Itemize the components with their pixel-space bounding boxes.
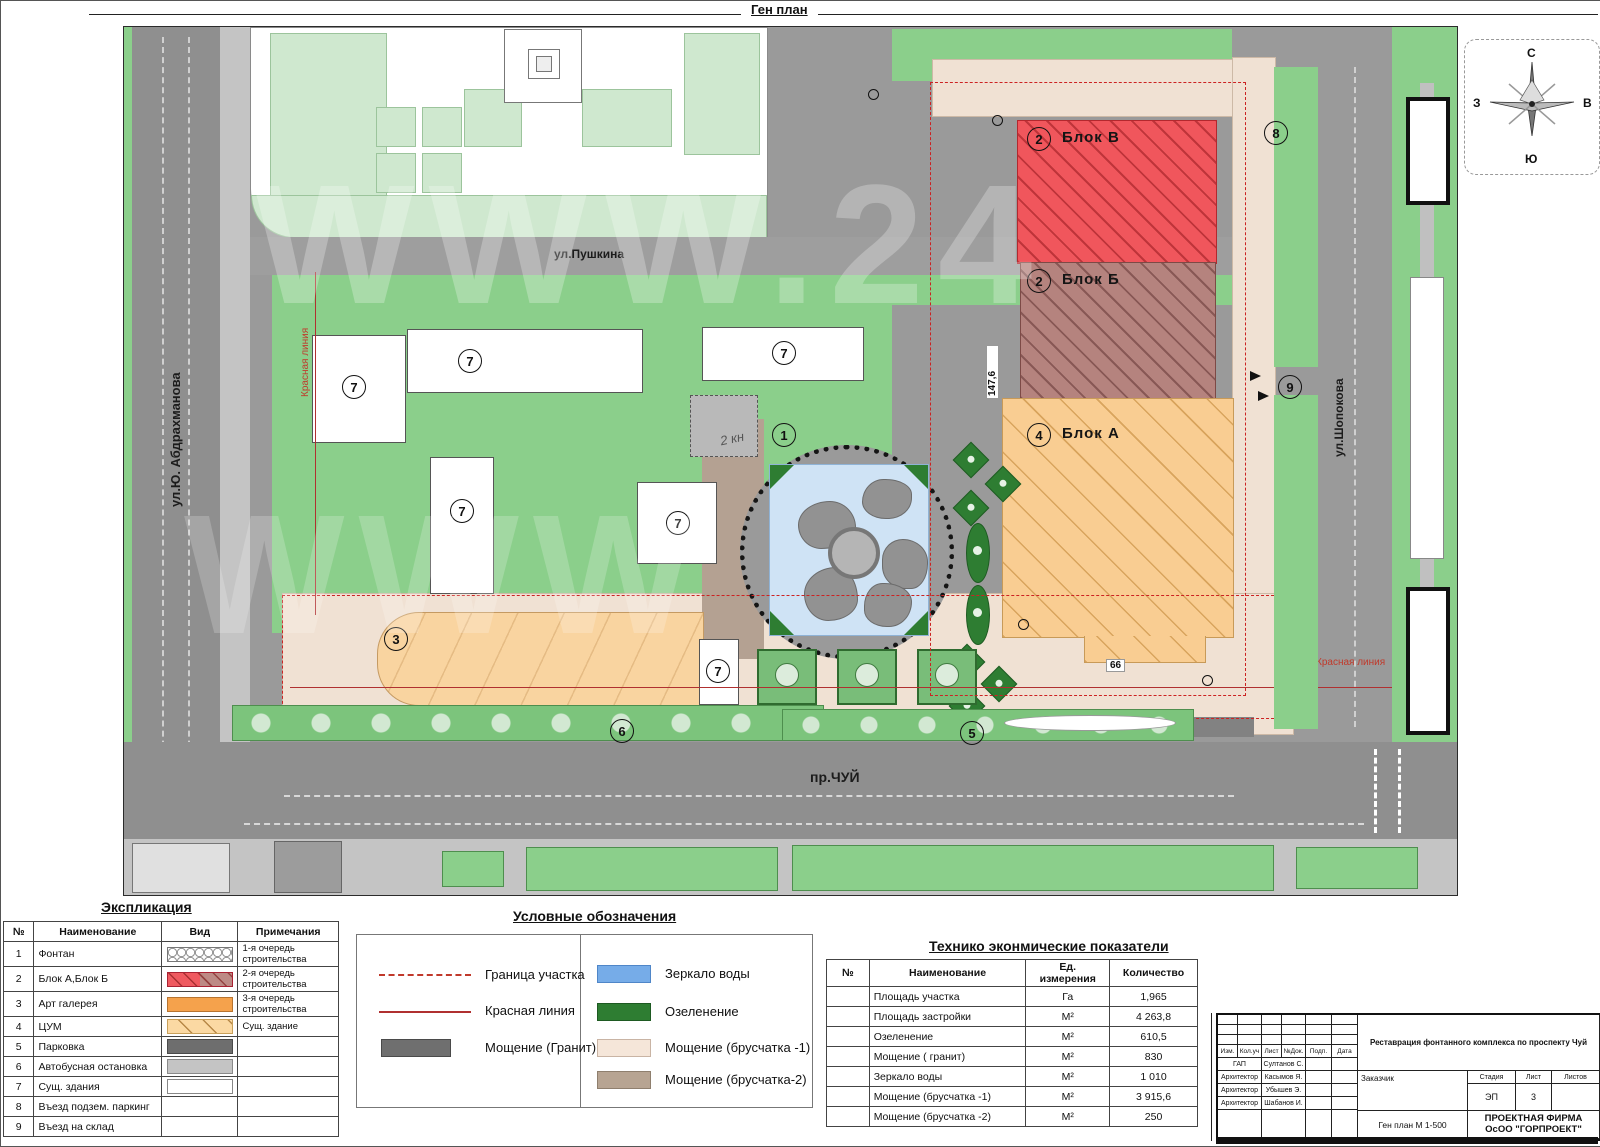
firm-line1: ПРОЕКТНАЯ ФИРМА — [1485, 1114, 1583, 1125]
row-swatch — [162, 992, 238, 1017]
crosswalk — [1374, 749, 1377, 833]
swatch-existing — [167, 1079, 233, 1094]
row-num: 3 — [4, 992, 34, 1017]
green-strip-trees — [232, 705, 824, 741]
row-name: Парковка — [34, 1037, 162, 1057]
marker-blok-b: 2 — [1027, 269, 1051, 293]
lane-dashes — [284, 795, 1234, 797]
east-building — [1406, 97, 1450, 205]
row-note — [238, 1057, 339, 1077]
stamp-role: ГАП — [1218, 1058, 1262, 1071]
table-row: 3 Арт галерея 3-я очередь строительства — [4, 992, 339, 1017]
drawing-sheet: Ген план ул.Ю. Абдрахманова ул.Пушкина — [0, 0, 1600, 1147]
existing-building — [407, 329, 643, 393]
south-building — [274, 841, 342, 893]
row-name: Площадь участка — [869, 987, 1026, 1007]
stamp-col: Лист — [1262, 1045, 1282, 1058]
tei-title: Технико эконмические показатели — [929, 938, 1169, 954]
survey-point — [1202, 675, 1213, 686]
row-qty: 1 010 — [1110, 1067, 1198, 1087]
row-swatch — [162, 1057, 238, 1077]
title-block: Изм. Кол.уч Лист №Док. Подп. Дата ГАП Су… — [1216, 1013, 1600, 1141]
top-frame-line — [89, 14, 1598, 15]
row-swatch — [162, 942, 238, 967]
paving1-swatch — [597, 1039, 651, 1057]
paving2-swatch — [597, 1071, 651, 1089]
stamp-person: Касымов Я. — [1262, 1071, 1306, 1084]
stage-header: Стадия — [1468, 1071, 1516, 1084]
page-title: Ген план — [741, 2, 818, 17]
marker-existing: 7 — [458, 349, 482, 373]
row-swatch — [162, 1037, 238, 1057]
lane-dashes — [1354, 67, 1356, 727]
lawn-patch — [270, 33, 387, 197]
row-num: 5 — [4, 1037, 34, 1057]
marker-warehouse-entry: 9 — [1278, 375, 1302, 399]
legend-label-paving1: Мощение (брусчатка -1) — [665, 1040, 810, 1055]
lawn-patch — [376, 107, 416, 147]
row-num — [827, 1007, 870, 1027]
compass-south: Ю — [1525, 152, 1537, 166]
fountain-island — [862, 479, 912, 519]
swatch-bus-stop — [167, 1059, 233, 1074]
legend-box: Граница участка Красная линия Мощение (Г… — [356, 934, 813, 1108]
marker-parking: 5 — [960, 721, 984, 745]
row-name: Зеркало воды — [869, 1067, 1026, 1087]
col-header: № — [4, 922, 34, 942]
boundary-line-swatch — [379, 974, 471, 976]
explication-title: Экспликация — [101, 899, 192, 915]
stamp-role: Архитектор — [1218, 1071, 1262, 1084]
row-note: 3-я очередь строительства — [238, 992, 339, 1017]
fountain-island — [882, 539, 928, 589]
swatch-fountain — [167, 947, 233, 962]
row-swatch — [162, 1117, 238, 1137]
stamp-col: Кол.уч — [1238, 1045, 1262, 1058]
row-qty: 610,5 — [1110, 1027, 1198, 1047]
site-boundary-south — [282, 595, 1294, 719]
row-num — [827, 1027, 870, 1047]
marker-art-gallery: 3 — [384, 627, 408, 651]
marker-existing: 7 — [342, 375, 366, 399]
sheet-header: Лист — [1516, 1071, 1552, 1084]
survey-point — [1018, 619, 1029, 630]
swatch-blocks — [167, 972, 233, 987]
water-swatch — [597, 965, 651, 983]
row-swatch — [162, 1077, 238, 1097]
red-line-vertical — [315, 272, 316, 615]
table-row: 2 Блок А,Блок Б 2-я очередь строительств… — [4, 967, 339, 992]
frame-line — [1211, 1013, 1212, 1141]
row-name: Въезд подзем. паркинг — [34, 1097, 162, 1117]
legend-label-paving2: Мощение (брусчатка-2) — [665, 1072, 807, 1087]
doc-label: Ген план М 1-500 — [1358, 1111, 1468, 1139]
row-swatch — [162, 967, 238, 992]
row-unit: М² — [1026, 1007, 1110, 1027]
legend-label-red-line: Красная линия — [485, 1003, 575, 1018]
col-header: Наименование — [869, 960, 1026, 987]
legend-divider — [580, 935, 581, 1107]
row-num: 8 — [4, 1097, 34, 1117]
row-num: 1 — [4, 942, 34, 967]
survey-point — [992, 115, 1003, 126]
stamp-role: Архитектор — [1218, 1084, 1262, 1097]
col-header: Ед. измерения — [1026, 960, 1110, 987]
stamp-col: Дата — [1332, 1045, 1358, 1058]
planting-corner — [770, 465, 794, 489]
row-unit: М² — [1026, 1067, 1110, 1087]
row-num: 6 — [4, 1057, 34, 1077]
row-qty: 250 — [1110, 1107, 1198, 1127]
red-line-chui — [290, 687, 1414, 688]
row-num — [827, 1047, 870, 1067]
firm-line2: ОсОО "ГОРПРОЕКТ" — [1485, 1125, 1582, 1136]
row-qty: 3 915,6 — [1110, 1087, 1198, 1107]
green-strip-shopokova — [1274, 67, 1318, 367]
marker-existing: 7 — [666, 511, 690, 535]
lawn-strip-pushkina — [251, 195, 767, 238]
row-name: Арт галерея — [34, 992, 162, 1017]
row-num: 4 — [4, 1017, 34, 1037]
east-building — [1410, 277, 1444, 559]
row-unit: М² — [1026, 1027, 1110, 1047]
table-row: 5 Парковка — [4, 1037, 339, 1057]
table-row: 9 Въезд на склад — [4, 1117, 339, 1137]
table-row: Мощение (брусчатка -1) М² 3 915,6 — [827, 1087, 1198, 1107]
table-row: 4 ЦУМ Сущ. здание — [4, 1017, 339, 1037]
table-row: Мощение ( гранит) М² 830 — [827, 1047, 1198, 1067]
marker-blok-v: 2 — [1027, 127, 1051, 151]
swatch-parking — [167, 1039, 233, 1054]
stamp-bottom-bar — [1216, 1137, 1598, 1144]
row-name: Площадь застройки — [869, 1007, 1026, 1027]
street-label-chui: пр.ЧУЙ — [810, 769, 860, 785]
stamp-person: Убышев Э. — [1262, 1084, 1306, 1097]
table-row: Озеленение М² 610,5 — [827, 1027, 1198, 1047]
col-header: Вид — [162, 922, 238, 942]
row-note: 2-я очередь строительства — [238, 967, 339, 992]
lawn-patch — [582, 89, 672, 147]
south-lawn — [1296, 847, 1418, 889]
marker-bus-stop: 6 — [610, 719, 634, 743]
tei-table: № Наименование Ед. измерения Количество … — [826, 959, 1198, 1127]
entry-arrow-icon — [1250, 371, 1261, 381]
south-lawn — [442, 851, 504, 887]
table-row: Зеркало воды М² 1 010 — [827, 1067, 1198, 1087]
lawn-patch — [422, 153, 462, 193]
south-lawn — [526, 847, 778, 891]
compass-north: С — [1527, 46, 1536, 60]
red-line-swatch — [379, 1011, 471, 1013]
row-unit: М² — [1026, 1107, 1110, 1127]
row-num — [827, 1087, 870, 1107]
stamp-col: №Док. — [1282, 1045, 1306, 1058]
row-name: Мощение (брусчатка -2) — [869, 1107, 1026, 1127]
red-line-label-left: Красная линия — [300, 307, 311, 397]
site-plan-map: ул.Ю. Абдрахманова ул.Пушкина — [123, 26, 1458, 896]
sheets-header: Листов — [1552, 1071, 1600, 1084]
row-unit: М² — [1026, 1047, 1110, 1067]
col-header: Количество — [1110, 960, 1198, 987]
row-name: Автобусная остановка — [34, 1057, 162, 1077]
row-name: Блок А,Блок Б — [34, 967, 162, 992]
stage-value: ЭП — [1468, 1084, 1516, 1111]
street-label-shopokova: ул.Шопокова — [1332, 317, 1346, 457]
row-name: Въезд на склад — [34, 1117, 162, 1137]
legend-label-boundary: Граница участка — [485, 967, 585, 982]
compass-rose: С Ю З В — [1464, 39, 1600, 175]
col-header: № — [827, 960, 870, 987]
path-island — [1004, 715, 1176, 731]
marker-existing: 7 — [450, 499, 474, 523]
table-row: Площадь участка Га 1,965 — [827, 987, 1198, 1007]
sheet-value: 3 — [1516, 1084, 1552, 1111]
row-note — [238, 1077, 339, 1097]
lawn-patch — [684, 33, 760, 155]
marker-fountain: 1 — [772, 423, 796, 447]
street-label-abdrakhmanova: ул.Ю. Абдрахманова — [168, 307, 183, 507]
explication-table: № Наименование Вид Примечания 1 Фонтан 1… — [3, 921, 339, 1137]
row-num: 2 — [4, 967, 34, 992]
greenery-swatch — [597, 1003, 651, 1021]
swatch-art-gallery — [167, 997, 233, 1012]
row-name: Мощение ( гранит) — [869, 1047, 1026, 1067]
row-unit: М² — [1026, 1087, 1110, 1107]
street-label-pushkina: ул.Пушкина — [554, 247, 624, 261]
row-num — [827, 987, 870, 1007]
row-note — [238, 1117, 339, 1137]
lawn-patch — [376, 153, 416, 193]
row-swatch — [162, 1017, 238, 1037]
row-num: 7 — [4, 1077, 34, 1097]
row-note: 1-я очередь строительства — [238, 942, 339, 967]
lane-dashes — [162, 37, 164, 817]
fountain-center — [828, 527, 880, 579]
legend-title: Условные обозначения — [513, 908, 676, 924]
compass-west: З — [1473, 96, 1481, 110]
row-note — [238, 1097, 339, 1117]
stamp-person: Шабанов И. — [1262, 1097, 1306, 1110]
granite-swatch — [381, 1039, 451, 1057]
survey-point — [868, 89, 879, 100]
marker-tsum: 4 — [1027, 423, 1051, 447]
row-qty: 1,965 — [1110, 987, 1198, 1007]
row-qty: 4 263,8 — [1110, 1007, 1198, 1027]
row-num — [827, 1107, 870, 1127]
row-name: Мощение (брусчатка -1) — [869, 1087, 1026, 1107]
table-row: 1 Фонтан 1-я очередь строительства — [4, 942, 339, 967]
red-line-label-right: Красная линия — [1316, 657, 1385, 668]
swatch-tsum — [167, 1019, 233, 1034]
east-building — [1406, 587, 1450, 735]
stamp-person: Султанов С. — [1262, 1058, 1306, 1071]
row-unit: Га — [1026, 987, 1110, 1007]
col-header: Наименование — [34, 922, 162, 942]
stamp-col: Изм. — [1218, 1045, 1238, 1058]
table-row: 8 Въезд подзем. паркинг — [4, 1097, 339, 1117]
marker-existing: 7 — [772, 341, 796, 365]
row-name: Сущ. здания — [34, 1077, 162, 1097]
south-building — [132, 843, 230, 893]
firm-name: ПРОЕКТНАЯ ФИРМА ОсОО "ГОРПРОЕКТ" — [1468, 1111, 1600, 1139]
row-note — [238, 1037, 339, 1057]
row-name: ЦУМ — [34, 1017, 162, 1037]
existing-building — [430, 457, 494, 594]
table-row: Площадь застройки М² 4 263,8 — [827, 1007, 1198, 1027]
table-row: 7 Сущ. здания — [4, 1077, 339, 1097]
legend-label-water: Зеркало воды — [665, 966, 750, 981]
row-qty: 830 — [1110, 1047, 1198, 1067]
stamp-role: Архитектор — [1218, 1097, 1262, 1110]
marker-parking-entry: 8 — [1264, 121, 1288, 145]
row-name: Озеленение — [869, 1027, 1026, 1047]
lane-dashes — [244, 823, 1364, 825]
entry-arrow-icon — [1258, 391, 1269, 401]
sheets-value — [1552, 1084, 1600, 1111]
legend-label-greenery: Озеленение — [665, 1004, 739, 1019]
lawn-patch — [422, 107, 462, 147]
lane-dashes — [188, 37, 190, 817]
south-lawn — [792, 845, 1274, 891]
row-swatch — [162, 1097, 238, 1117]
crosswalk — [1398, 749, 1401, 833]
table-row: Мощение (брусчатка -2) М² 250 — [827, 1107, 1198, 1127]
customer-label: Заказчик — [1358, 1071, 1468, 1111]
col-header: Примечания — [238, 922, 339, 942]
project-title: Реставрация фонтанного комплекса по прос… — [1358, 1015, 1600, 1071]
table-row: 6 Автобусная остановка — [4, 1057, 339, 1077]
row-name: Фонтан — [34, 942, 162, 967]
compass-east: В — [1583, 96, 1592, 110]
monument-core — [536, 56, 552, 72]
row-num: 9 — [4, 1117, 34, 1137]
stamp-col: Подп. — [1306, 1045, 1332, 1058]
green-strip-shopokova — [1274, 395, 1318, 729]
row-note: Сущ. здание — [238, 1017, 339, 1037]
marker-existing: 7 — [706, 659, 730, 683]
row-num — [827, 1067, 870, 1087]
legend-label-granite: Мощение (Гранит) — [485, 1040, 596, 1055]
